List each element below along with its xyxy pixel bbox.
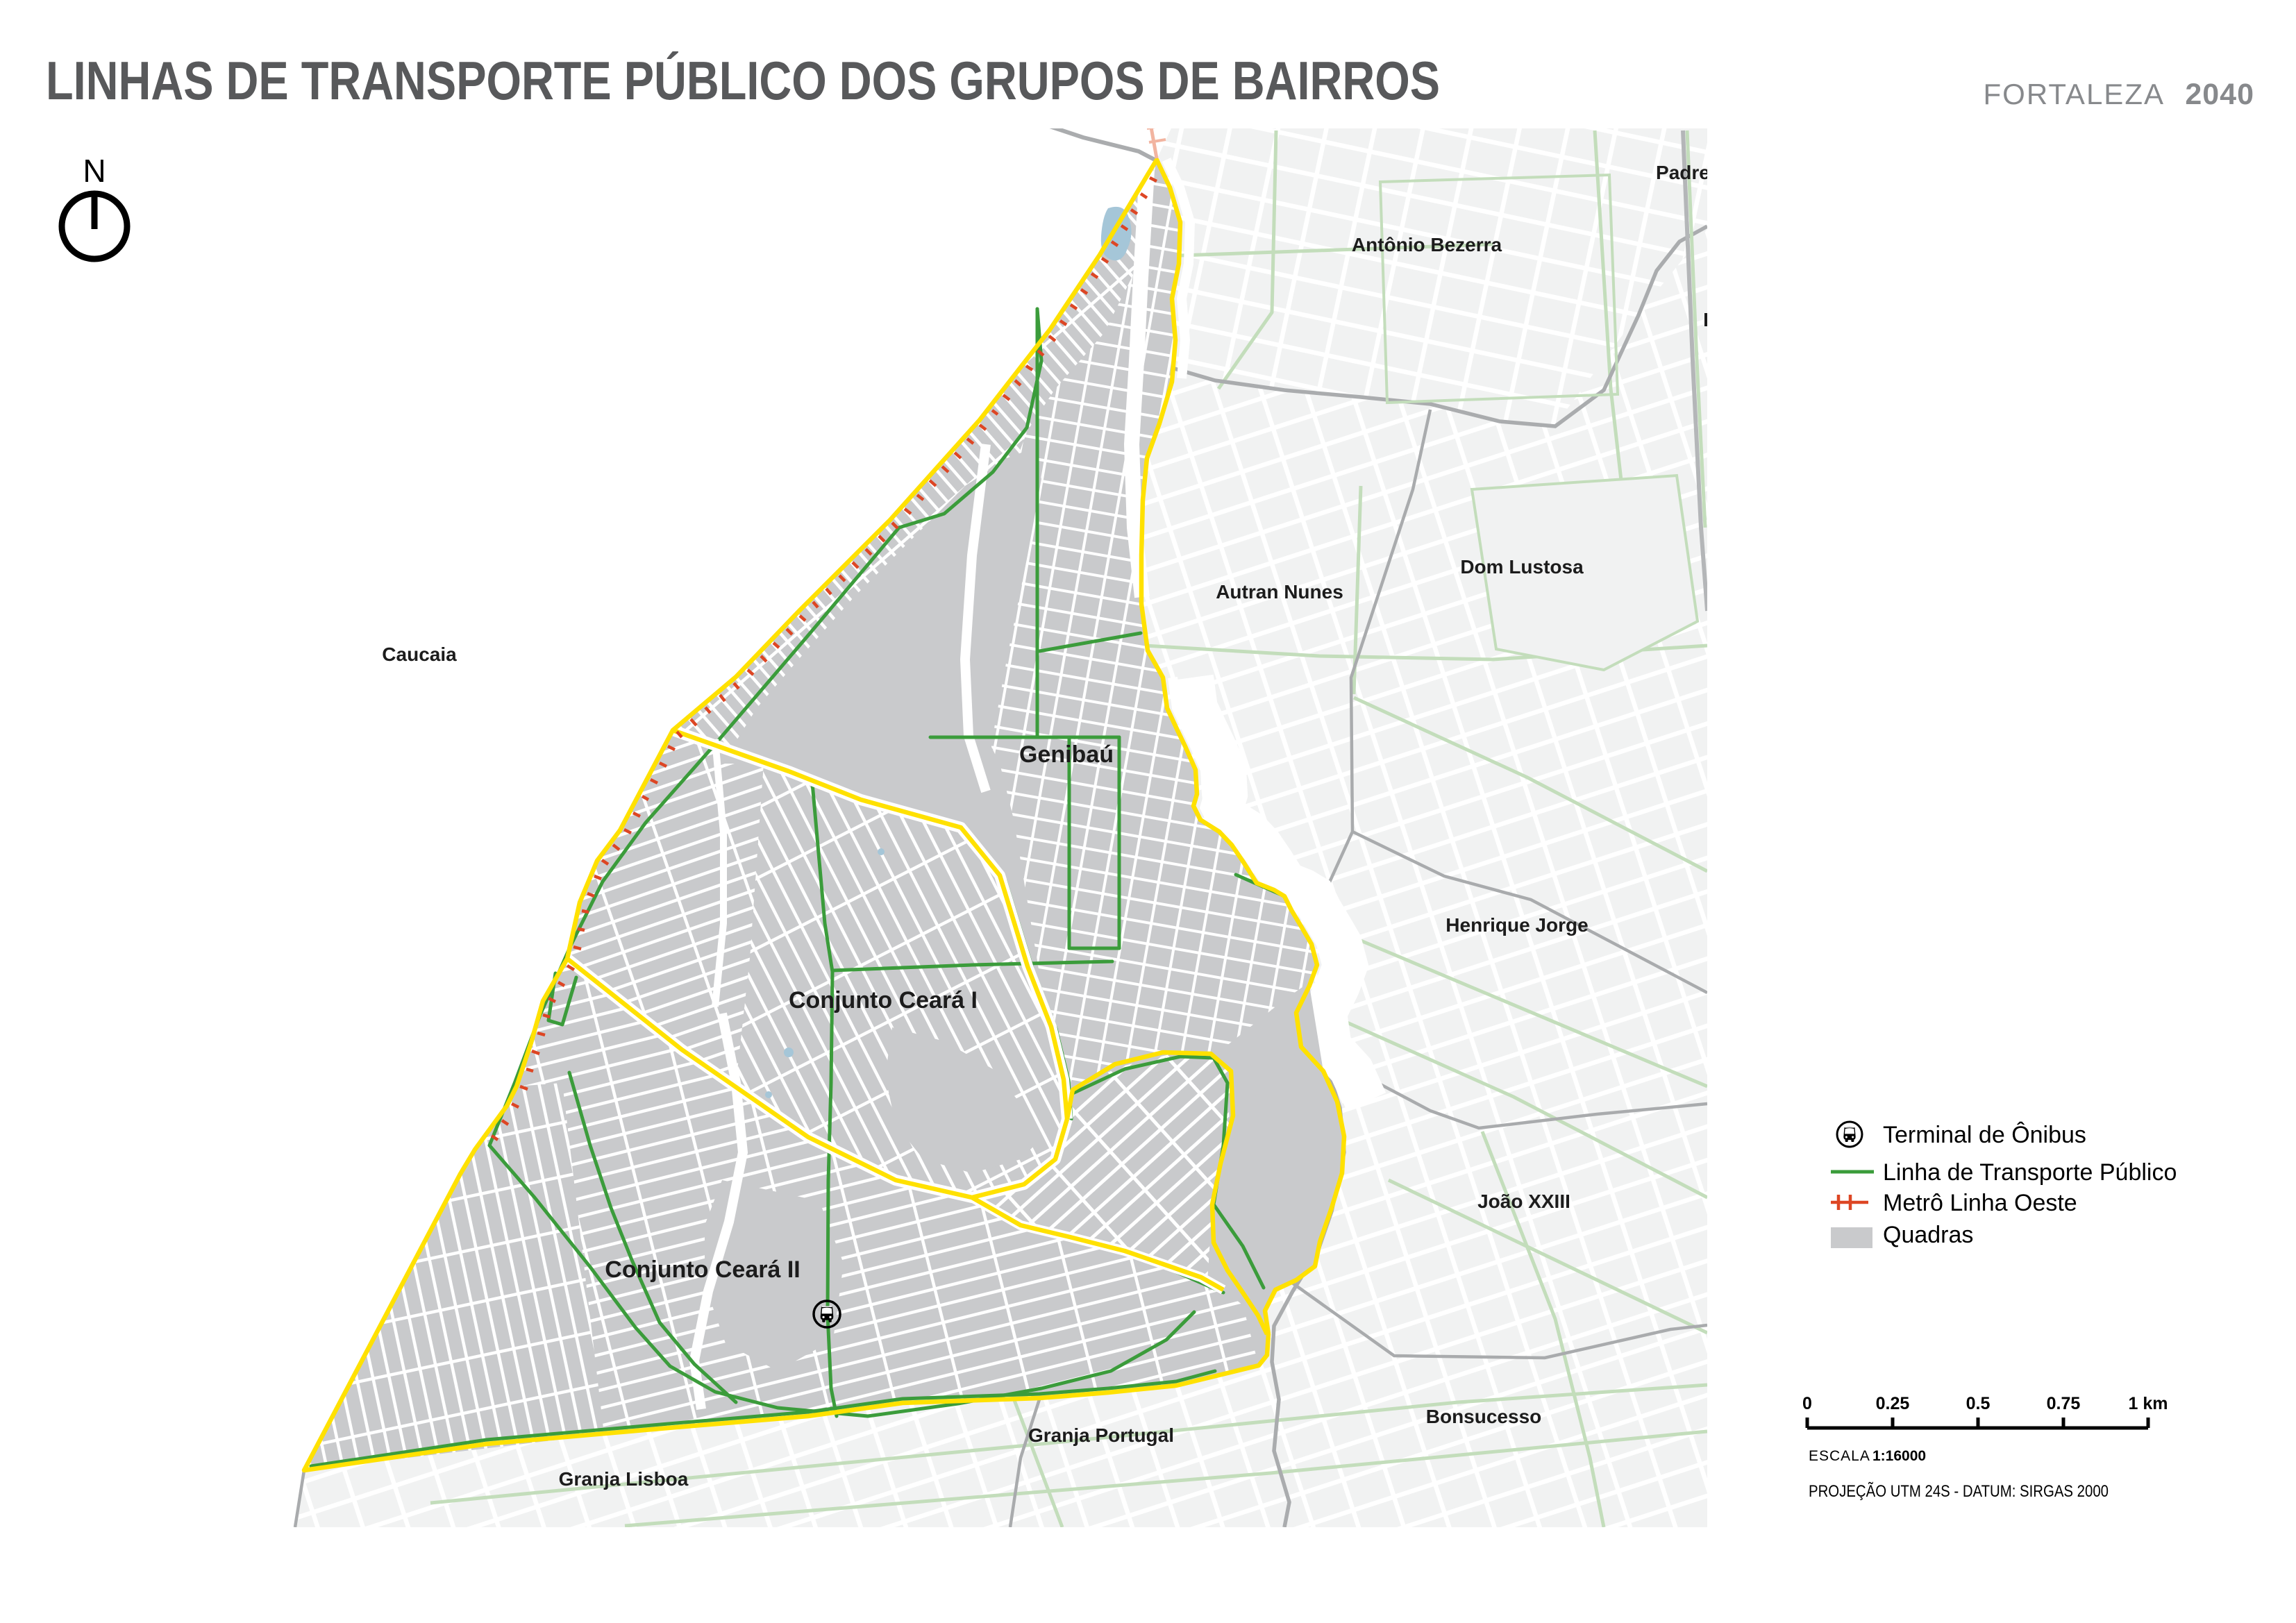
svg-text:Bonsucesso: Bonsucesso bbox=[1426, 1406, 1542, 1427]
svg-text:1:16000: 1:16000 bbox=[1872, 1448, 1926, 1464]
svg-text:PROJEÇÃO UTM 24S - DATUM: SIRG: PROJEÇÃO UTM 24S - DATUM: SIRGAS 2000 bbox=[1809, 1482, 2109, 1501]
svg-text:N: N bbox=[83, 153, 106, 189]
svg-text:0: 0 bbox=[1802, 1394, 1812, 1413]
svg-text:0.25: 0.25 bbox=[1876, 1394, 1910, 1413]
svg-text:João XXIII: João XXIII bbox=[1477, 1191, 1570, 1212]
svg-text:Autran Nunes: Autran Nunes bbox=[1216, 581, 1343, 603]
svg-text:Dom Lustosa: Dom Lustosa bbox=[1460, 556, 1584, 578]
svg-text:Antônio Bezerra: Antônio Bezerra bbox=[1352, 234, 1502, 255]
svg-text:Granja Lisboa: Granja Lisboa bbox=[559, 1468, 689, 1490]
svg-text:0.5: 0.5 bbox=[1966, 1394, 1991, 1413]
svg-text:Conjunto Ceará I: Conjunto Ceará I bbox=[789, 987, 978, 1014]
svg-text:1 km: 1 km bbox=[2129, 1394, 2168, 1413]
svg-text:Henrique Jorge: Henrique Jorge bbox=[1446, 914, 1588, 936]
svg-text:ESCALA: ESCALA bbox=[1809, 1448, 1870, 1464]
svg-text:2040: 2040 bbox=[2185, 78, 2254, 111]
svg-text:Granja Portugal: Granja Portugal bbox=[1028, 1424, 1174, 1446]
svg-text:Caucaia: Caucaia bbox=[382, 644, 457, 665]
svg-text:Conjunto Ceará II: Conjunto Ceará II bbox=[605, 1256, 800, 1283]
svg-text:0.75: 0.75 bbox=[2047, 1394, 2081, 1413]
svg-text:Quadras: Quadras bbox=[1883, 1222, 1973, 1248]
svg-text:Terminal de Ônibus: Terminal de Ônibus bbox=[1883, 1122, 2086, 1148]
svg-text:Linha de Transporte Público: Linha de Transporte Público bbox=[1883, 1159, 2177, 1186]
svg-text:Metrô Linha Oeste: Metrô Linha Oeste bbox=[1883, 1190, 2077, 1216]
svg-text:LINHAS DE TRANSPORTE PÚBLICO D: LINHAS DE TRANSPORTE PÚBLICO DOS GRUPOS … bbox=[46, 50, 1440, 111]
svg-text:FORTALEZA: FORTALEZA bbox=[1984, 78, 2165, 110]
svg-text:Genibaú: Genibaú bbox=[1019, 741, 1114, 768]
